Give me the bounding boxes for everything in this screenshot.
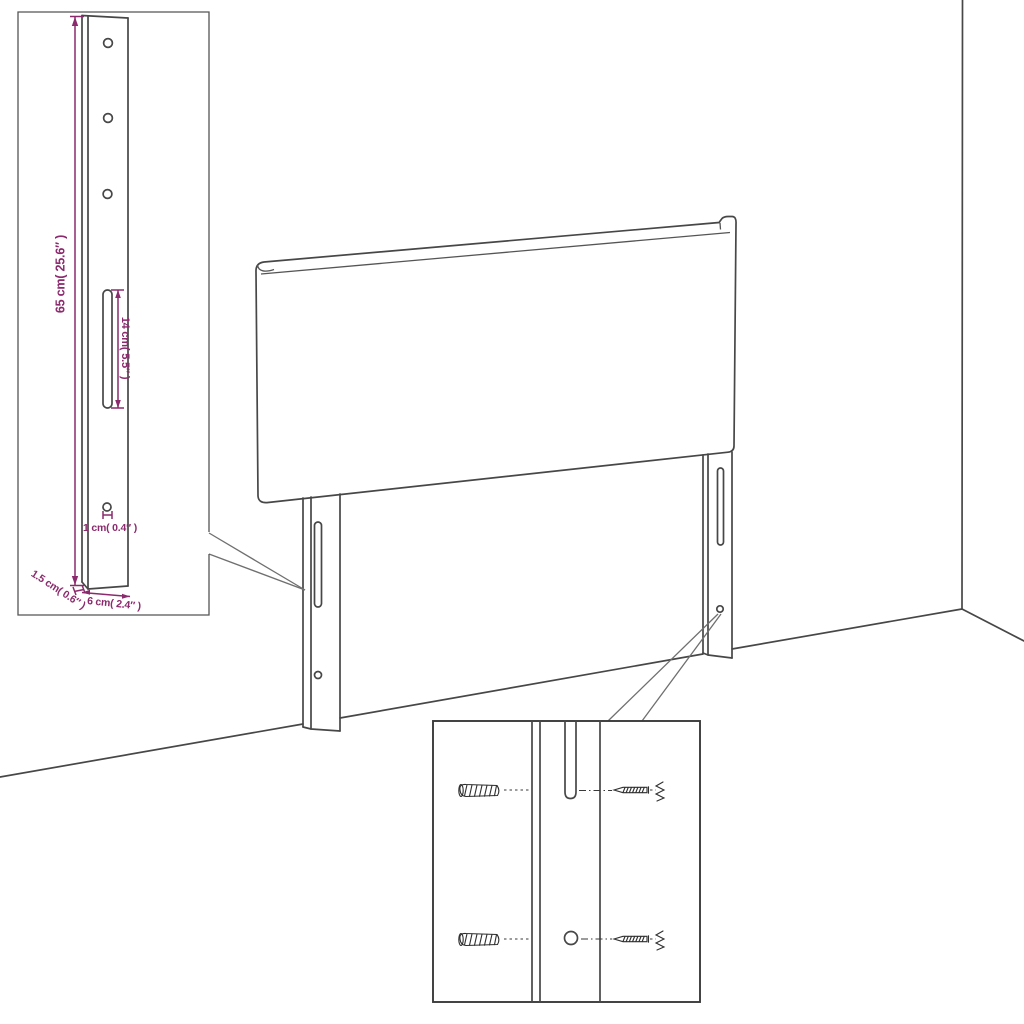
- callout-leaders: [209, 533, 721, 721]
- headboard-top-right-fold: [720, 223, 721, 230]
- break-squiggle-top: [656, 782, 664, 801]
- dim-width-label: 6 cm( 2.4″ ): [87, 595, 142, 613]
- left-leg-slot: [315, 522, 322, 607]
- dim-hole-label: 1 cm( 0.4″ ): [83, 522, 137, 534]
- right-leg: [703, 452, 732, 658]
- leg-view-bottom-hole: [103, 503, 111, 511]
- dim-thickness: 1.5 cm( 0.6″ ): [29, 568, 88, 612]
- wall-corner-vertical-line: [962, 0, 963, 609]
- leg-callout-leader-lower: [209, 554, 305, 590]
- dim-width-arrow-left: [82, 590, 90, 595]
- headboard-outline: [256, 217, 736, 503]
- left-leg-bottom-edge: [303, 727, 340, 731]
- break-squiggle-bottom: [656, 931, 664, 950]
- leg-view-slot: [103, 290, 112, 408]
- left-leg: [303, 494, 340, 731]
- left-leg-hole: [315, 672, 322, 679]
- leg-view-hole-3: [103, 190, 112, 199]
- mounting-detail-inset: [433, 721, 700, 1002]
- mounting-screw-top: [614, 787, 649, 793]
- wall-anchor-top: [459, 784, 499, 796]
- dim-thickness-line: [74, 590, 84, 592]
- mounting-callout-leader-right: [642, 614, 721, 721]
- wall-base-line-right: [732, 609, 962, 649]
- leg-callout-leader-upper: [209, 533, 305, 590]
- screw-threads: [623, 937, 644, 942]
- mounting-inset-frame: [433, 721, 700, 1002]
- diagram-canvas: 65 cm( 25.6″ ) 14 cm( 5.5″ ) 1 cm( 0.4″ …: [0, 0, 1024, 1024]
- wall-anchor-ribs: [465, 934, 497, 946]
- mounting-screw-bottom: [614, 936, 649, 942]
- headboard-panel: [256, 217, 736, 503]
- dim-height: 65 cm( 25.6″ ): [53, 17, 84, 586]
- dim-hole: 1 cm( 0.4″ ): [83, 511, 137, 534]
- dim-height-arrow-top: [72, 17, 78, 26]
- closeup-leg-hole: [565, 932, 578, 945]
- wall-anchor-bottom: [459, 933, 499, 945]
- leg-view-hole-1: [104, 39, 113, 48]
- screw-threads: [623, 788, 644, 793]
- wall-anchor-ribs: [465, 785, 497, 797]
- dim-slot-arrow-bottom: [115, 400, 121, 408]
- leg-front-view: [82, 16, 128, 590]
- wall-base-line-side: [962, 609, 1024, 641]
- dim-height-label: 65 cm( 25.6″ ): [53, 235, 67, 313]
- wall-base-line-left: [0, 724, 303, 777]
- wall-base-line-middle: [340, 654, 703, 718]
- leg-view-top-edge: [82, 16, 128, 19]
- dim-height-arrow-bottom: [72, 576, 78, 585]
- right-leg-hole: [717, 606, 723, 612]
- dim-width: 6 cm( 2.4″ ): [82, 590, 142, 613]
- leg-view-bottom-edge: [82, 582, 128, 589]
- leg-detail-inset: 65 cm( 25.6″ ) 14 cm( 5.5″ ) 1 cm( 0.4″ …: [18, 12, 209, 615]
- right-leg-slot: [718, 468, 724, 545]
- dim-slot-label: 14 cm( 5.5″ ): [119, 317, 131, 380]
- dim-slot-arrow-top: [115, 290, 121, 298]
- closeup-leg-slot: [565, 721, 576, 799]
- headboard-dimension-diagram: 65 cm( 25.6″ ) 14 cm( 5.5″ ) 1 cm( 0.4″ …: [0, 0, 1024, 1024]
- leg-view-hole-2: [104, 114, 113, 123]
